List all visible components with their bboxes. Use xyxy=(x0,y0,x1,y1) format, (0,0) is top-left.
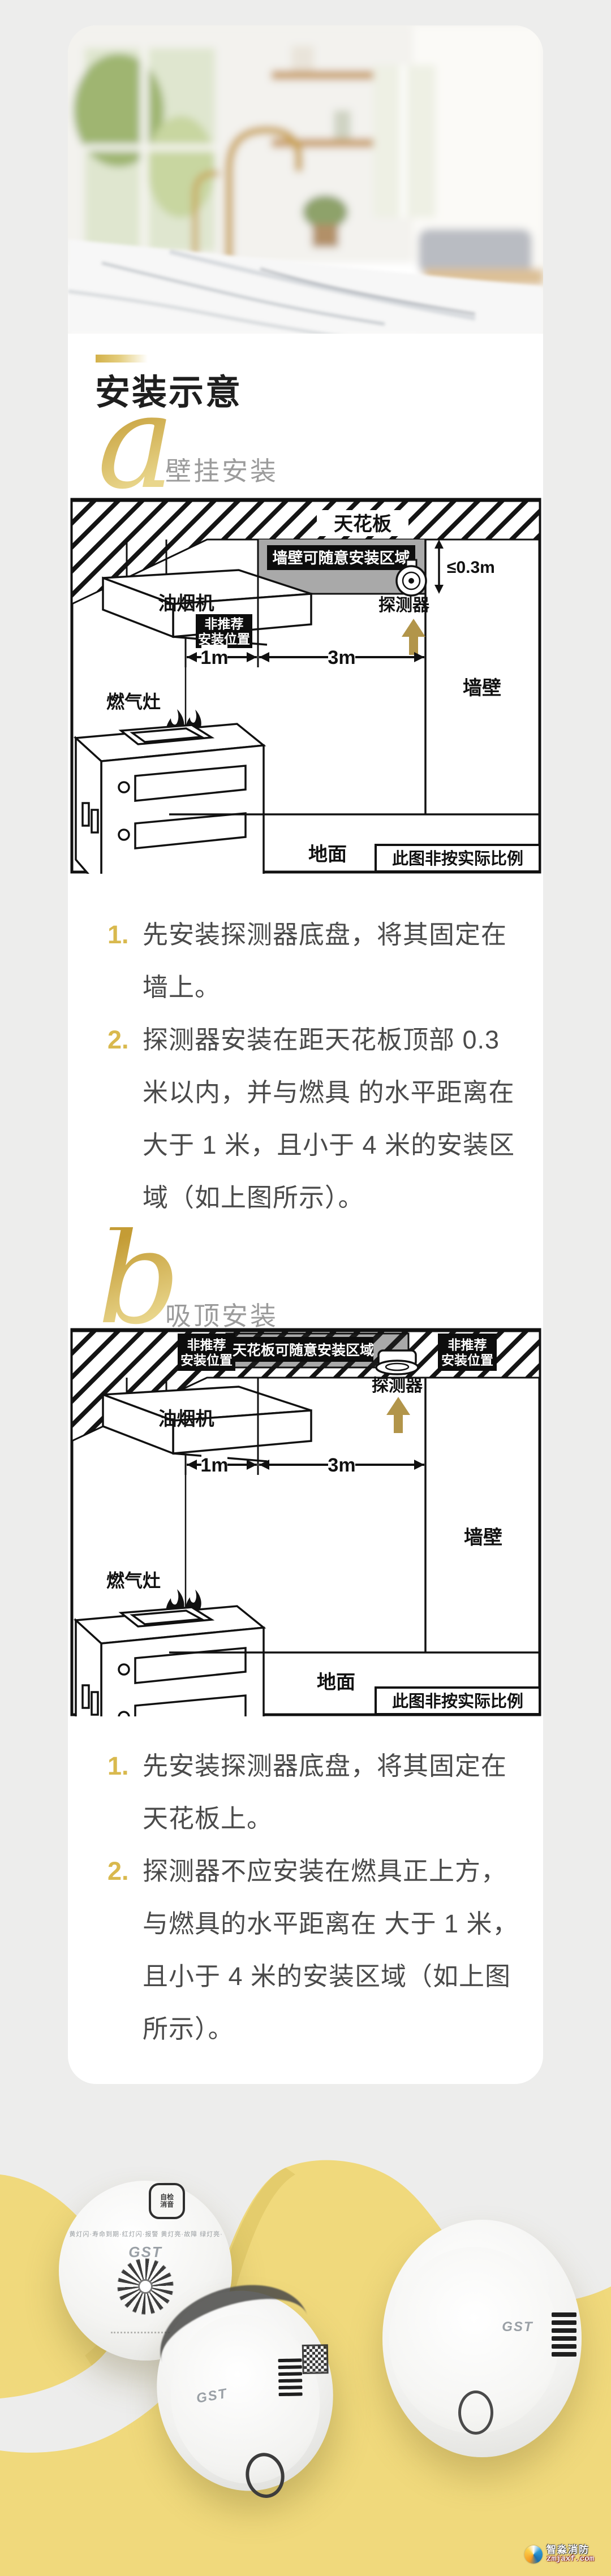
svg-text:此图非按实际比例: 此图非按实际比例 xyxy=(392,849,523,868)
wall-zone-label: 墙壁可随意安装区域 xyxy=(273,549,410,567)
test-button xyxy=(458,2391,493,2435)
cabinet xyxy=(76,724,264,874)
indicator-legend-text: 黄灯闪·寿命到期·红灯闪·报警 黄灯亮·故障 绿灯亮·正常 xyxy=(69,2229,221,2238)
step-item: 1. 先安装探测器底盘，将其固定在天花板上。 xyxy=(107,1740,529,1845)
wall-label: 墙壁 xyxy=(463,678,501,699)
step-item: 2. 探测器不应安装在燃具正上方，与燃具的水平距离在 大于 1 米，且小于 4 … xyxy=(107,1845,529,2055)
ceiling-label: 天花板 xyxy=(334,514,391,535)
stove-label: 燃气灶 xyxy=(106,1570,161,1591)
svg-text:非推荐: 非推荐 xyxy=(448,1337,487,1352)
svg-text:3m: 3m xyxy=(328,647,355,668)
svg-text:安装位置: 安装位置 xyxy=(180,1353,233,1367)
steps-ceiling-mount: 1. 先安装探测器底盘，将其固定在天花板上。 2. 探测器不应安装在燃具正上方，… xyxy=(107,1740,529,2055)
steps-wall-mount: 1. 先安装探测器底盘，将其固定在墙上。 2. 探测器安装在距天花板顶部 0.3… xyxy=(107,908,529,1224)
wall-label: 墙壁 xyxy=(464,1527,502,1548)
svg-text:安装位置: 安装位置 xyxy=(441,1353,493,1367)
kitchen-photo xyxy=(68,25,543,334)
detector-icon-ceiling xyxy=(376,1350,418,1374)
watermark-site: zmjaxf.com xyxy=(547,2555,594,2564)
detector-label: 探测器 xyxy=(378,596,430,615)
ceiling-zone-label: 天花板可随意安装区域 xyxy=(233,1342,374,1358)
content-card: 安装示意 a 壁挂安装 xyxy=(68,25,543,2084)
svg-text:1m: 1m xyxy=(200,647,228,668)
svg-text:非推荐: 非推荐 xyxy=(205,616,244,631)
detector-label: 探测器 xyxy=(372,1377,423,1395)
floor-label: 地面 xyxy=(317,1672,355,1693)
svg-text:3m: 3m xyxy=(328,1455,355,1476)
floor-label: 地面 xyxy=(308,844,347,865)
diagram-ceiling-mount: 非推荐 安装位置 天花板可随意安装区域 非推荐 安装位置 探测器 油烟机 1m … xyxy=(70,1328,541,1716)
title-accent-bar xyxy=(96,355,148,363)
fan-hub xyxy=(138,2279,153,2294)
diagram-wall-mount: 天花板 墙壁可随意安装区域 ≤0.3m 探测器 油烟机 非推荐 安装位置 xyxy=(70,498,541,874)
hood-label: 油烟机 xyxy=(158,1408,214,1429)
svg-text:1m: 1m xyxy=(200,1455,228,1476)
watermark-logo-icon xyxy=(524,2545,543,2564)
kitchen-photo-art xyxy=(68,25,543,334)
svg-text:非推荐: 非推荐 xyxy=(187,1337,226,1352)
section-a-letter: a xyxy=(97,392,175,493)
cabinet xyxy=(76,1606,264,1716)
step-item: 1. 先安装探测器底盘，将其固定在墙上。 xyxy=(107,908,529,1013)
svg-text:此图非按实际比例: 此图非按实际比例 xyxy=(392,1692,523,1711)
watermark-name: 智淼消防 xyxy=(547,2545,594,2555)
section-a-label: 壁挂安装 xyxy=(165,451,278,488)
vent-grille-icon xyxy=(552,2312,576,2357)
watermark: 智淼消防 zmjaxf.com xyxy=(524,2545,594,2564)
step-item: 2. 探测器安装在距天花板顶部 0.3 米以内，并与燃具 的水平距离在大于 1 … xyxy=(107,1013,529,1224)
self-test-mute-button: 自检 消音 xyxy=(149,2183,185,2219)
svg-text:安装位置: 安装位置 xyxy=(198,632,250,646)
vent-grille-icon xyxy=(278,2358,302,2396)
distance-label: ≤0.3m xyxy=(447,558,495,577)
brand-logo: GST xyxy=(502,2319,533,2335)
hood-label: 油烟机 xyxy=(158,593,214,614)
product-detector-right: GST xyxy=(382,2220,582,2457)
qr-code xyxy=(303,2346,326,2372)
stove-label: 燃气灶 xyxy=(106,692,161,712)
